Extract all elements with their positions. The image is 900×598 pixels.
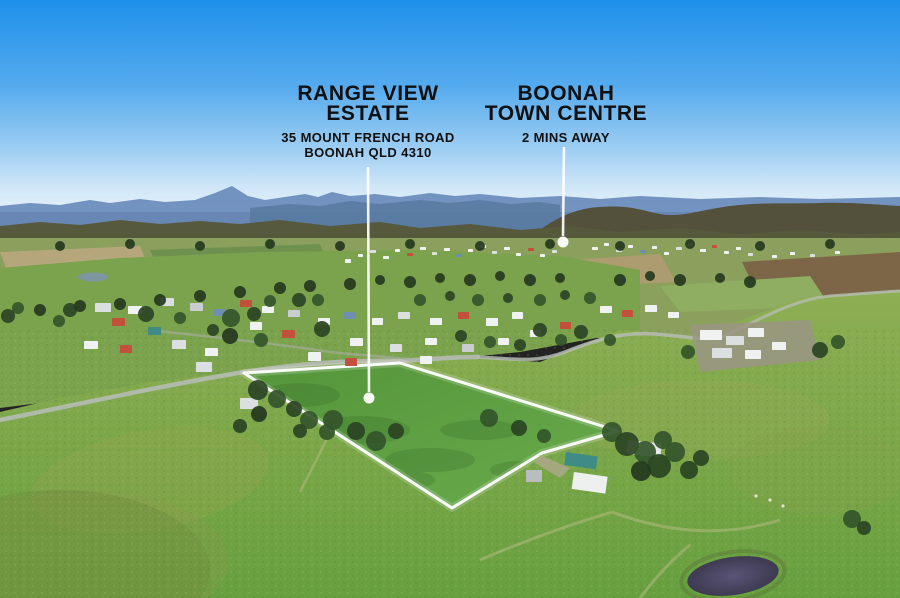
estate-marker-dot (364, 393, 375, 404)
town-centre-annotation: BOONAH TOWN CENTRE 2 MINS AWAY (485, 84, 648, 145)
town-title-line2: TOWN CENTRE (485, 104, 648, 124)
town-title-line1: BOONAH (485, 84, 648, 104)
small-dam (78, 273, 108, 282)
estate-leader-line (368, 167, 369, 392)
town-marker-dot (558, 237, 569, 248)
estate-title-line2: ESTATE (281, 104, 454, 124)
town-leader-line (563, 147, 564, 236)
town-subtitle: 2 MINS AWAY (485, 130, 648, 145)
estate-title-line1: RANGE VIEW (281, 84, 454, 104)
estate-address-line1: 35 MOUNT FRENCH ROAD (281, 130, 454, 145)
aerial-photo-advert: RANGE VIEW ESTATE 35 MOUNT FRENCH ROAD B… (0, 0, 900, 598)
estate-annotation: RANGE VIEW ESTATE 35 MOUNT FRENCH ROAD B… (281, 84, 454, 160)
estate-address-line2: BOONAH QLD 4310 (281, 145, 454, 160)
